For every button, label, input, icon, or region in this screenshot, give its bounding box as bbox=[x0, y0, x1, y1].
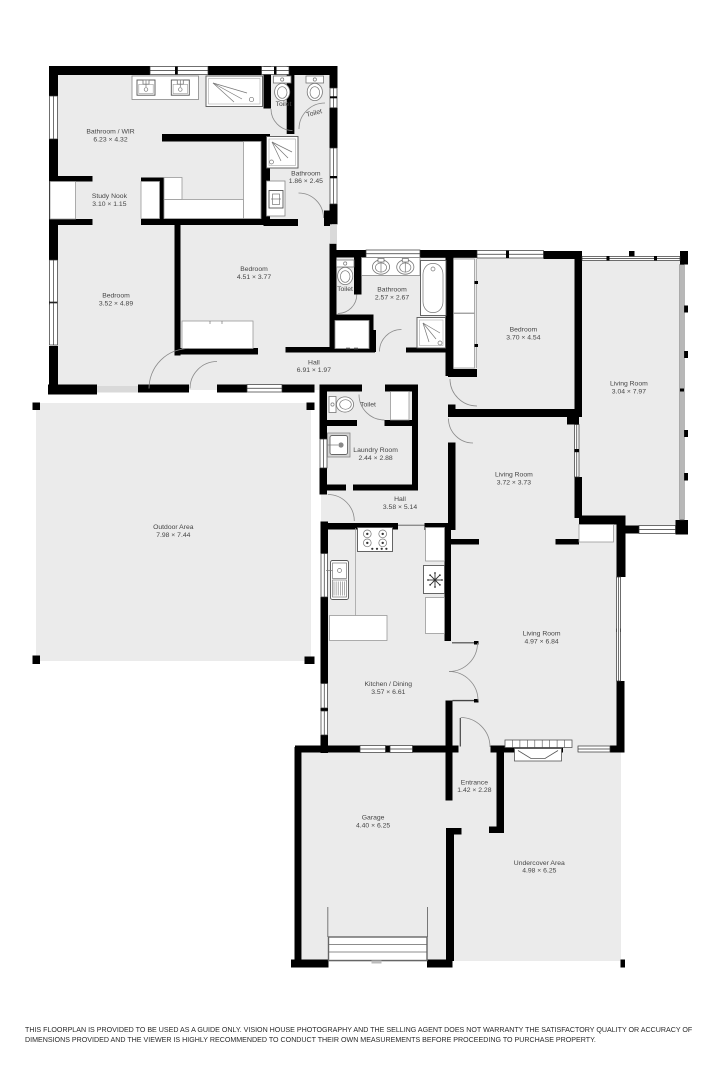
svg-text:3.52 × 4.89: 3.52 × 4.89 bbox=[99, 300, 133, 307]
svg-text:Entrance: Entrance bbox=[461, 779, 488, 786]
svg-text:Toilet: Toilet bbox=[337, 286, 353, 293]
svg-text:4.97 × 6.84: 4.97 × 6.84 bbox=[524, 638, 558, 645]
svg-text:Bedroom: Bedroom bbox=[240, 266, 268, 273]
svg-text:4.51 × 3.77: 4.51 × 3.77 bbox=[237, 274, 271, 281]
svg-text:3.58 × 5.14: 3.58 × 5.14 bbox=[383, 504, 417, 511]
svg-text:6.23 × 4.32: 6.23 × 4.32 bbox=[93, 136, 127, 143]
svg-text:3.10 × 1.15: 3.10 × 1.15 bbox=[92, 201, 126, 208]
svg-text:6.91 × 1.97: 6.91 × 1.97 bbox=[297, 367, 331, 374]
svg-text:THIS FLOORPLAN IS PROVIDED TO: THIS FLOORPLAN IS PROVIDED TO BE USED AS… bbox=[25, 1026, 693, 1034]
svg-text:Garage: Garage bbox=[362, 815, 385, 822]
svg-text:Bedroom: Bedroom bbox=[102, 293, 130, 300]
svg-text:Bathroom: Bathroom bbox=[291, 170, 321, 177]
svg-text:Study Nook: Study Nook bbox=[92, 193, 128, 200]
svg-text:7.98 × 7.44: 7.98 × 7.44 bbox=[156, 532, 190, 539]
svg-text:4.98 × 6.25: 4.98 × 6.25 bbox=[522, 868, 556, 875]
svg-text:Bedroom: Bedroom bbox=[510, 327, 538, 334]
svg-text:4.40 × 6.25: 4.40 × 6.25 bbox=[356, 823, 390, 830]
svg-text:Living Room: Living Room bbox=[495, 472, 533, 479]
svg-text:1.86 × 2.45: 1.86 × 2.45 bbox=[289, 178, 323, 185]
svg-text:Kitchen / Dining: Kitchen / Dining bbox=[364, 681, 412, 688]
svg-text:2.57 × 2.67: 2.57 × 2.67 bbox=[375, 295, 409, 302]
svg-text:Toilet: Toilet bbox=[360, 401, 376, 408]
svg-text:Bathroom / WIR: Bathroom / WIR bbox=[86, 129, 134, 136]
svg-text:3.72 × 3.73: 3.72 × 3.73 bbox=[497, 479, 531, 486]
svg-text:Undercover Area: Undercover Area bbox=[514, 860, 565, 867]
svg-text:Laundry Room: Laundry Room bbox=[353, 447, 398, 454]
svg-text:3.04 × 7.97: 3.04 × 7.97 bbox=[612, 388, 646, 395]
svg-text:3.70 × 4.54: 3.70 × 4.54 bbox=[506, 335, 540, 342]
svg-text:Living Room: Living Room bbox=[523, 631, 561, 638]
svg-text:Hall: Hall bbox=[394, 496, 406, 503]
svg-text:2.44 × 2.88: 2.44 × 2.88 bbox=[358, 455, 392, 462]
svg-text:Bathroom: Bathroom bbox=[377, 287, 407, 294]
svg-text:1.42 × 2.28: 1.42 × 2.28 bbox=[457, 787, 491, 794]
svg-text:Outdoor Area: Outdoor Area bbox=[153, 524, 194, 531]
svg-text:Living Room: Living Room bbox=[610, 381, 648, 388]
svg-text:DIMENSIONS PROVIDED AND THE VI: DIMENSIONS PROVIDED AND THE VIEWER IS HI… bbox=[25, 1036, 596, 1044]
svg-text:Toilet: Toilet bbox=[276, 101, 292, 108]
svg-text:Hall: Hall bbox=[308, 359, 320, 366]
svg-text:3.57 × 6.61: 3.57 × 6.61 bbox=[371, 689, 405, 696]
